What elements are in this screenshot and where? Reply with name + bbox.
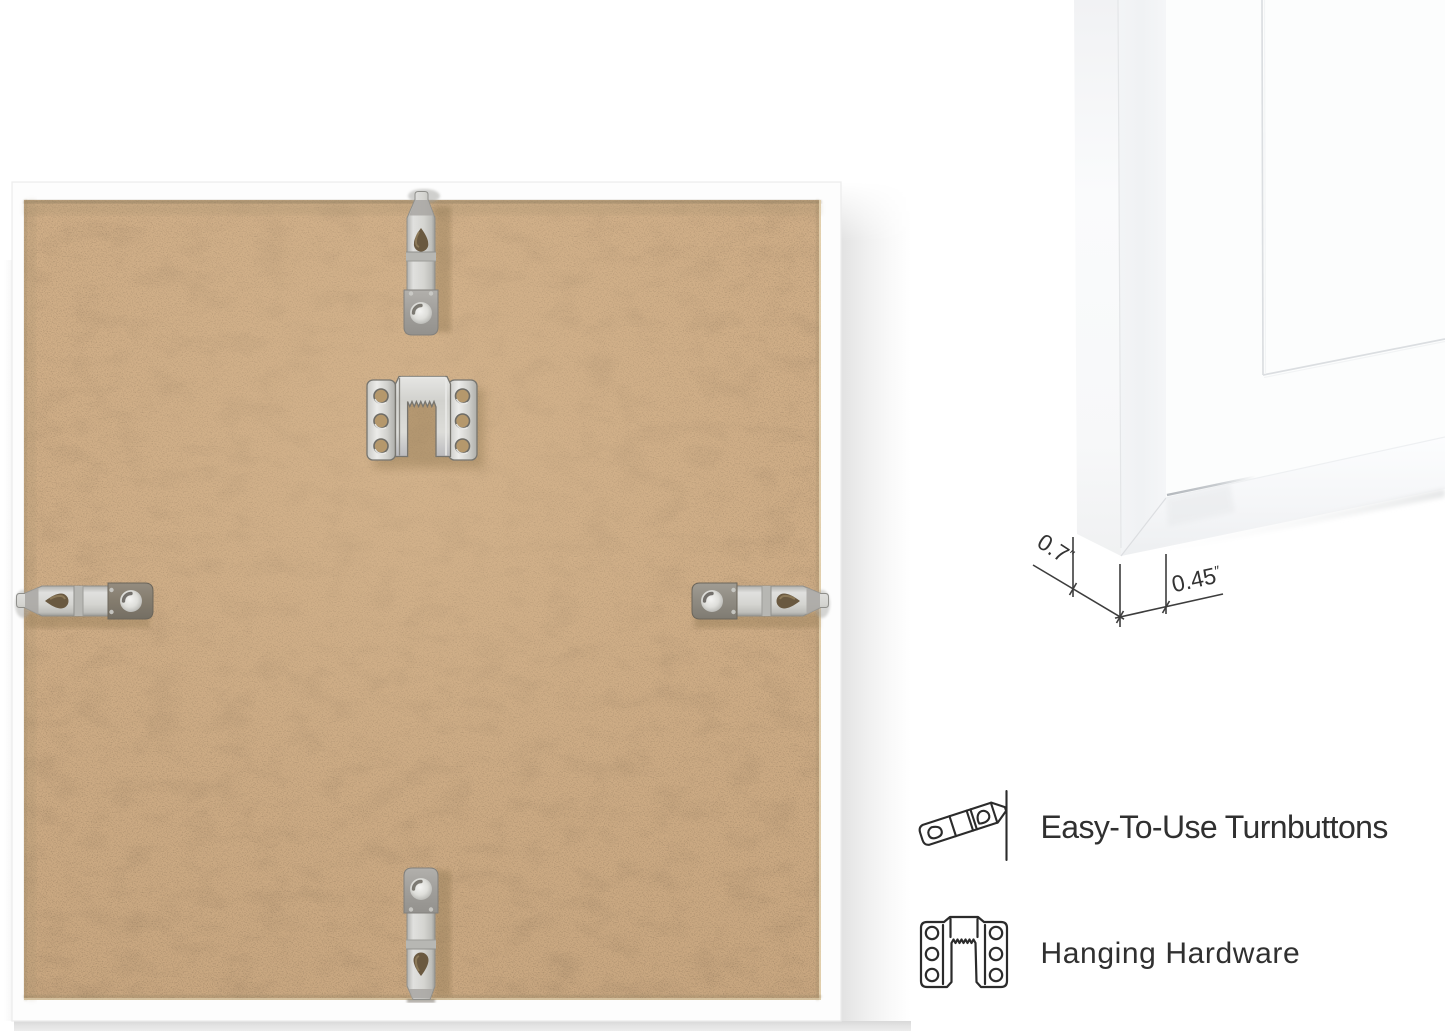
svg-text:Hanging Hardware: Hanging Hardware [1041,937,1301,970]
svg-text:Easy-To-Use Turnbuttons: Easy-To-Use Turnbuttons [1041,809,1388,845]
